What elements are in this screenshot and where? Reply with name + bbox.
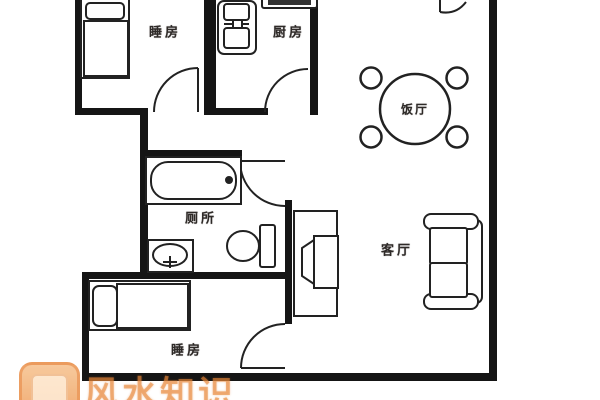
watermark-logo-inner <box>31 374 68 400</box>
label-living-room: 客厅 <box>381 240 413 259</box>
label-dining-room: 饭厅 <box>401 101 429 118</box>
dining-chair <box>361 68 382 89</box>
sofa-symbol <box>424 214 482 309</box>
dining-chair <box>447 68 468 89</box>
floor-plan: 睡房 厨房 饭厅 厕所 客厅 睡房 风水知识 <box>0 0 600 400</box>
bed-top-symbol <box>81 0 129 78</box>
wash-basin-symbol <box>148 240 193 272</box>
label-kitchen: 厨房 <box>273 22 305 41</box>
watermark-text: 风水知识 <box>84 366 236 400</box>
watermark-logo-icon <box>19 362 80 400</box>
wall-bedroom-top-bottom <box>75 108 143 115</box>
wall-right <box>489 0 497 381</box>
bathtub-symbol <box>146 157 241 204</box>
label-bedroom-top: 睡房 <box>149 22 181 41</box>
door-corridor <box>240 161 285 206</box>
dining-chair <box>447 127 468 148</box>
wall-bedroom-bottom-top <box>82 272 292 279</box>
label-bathroom: 厕所 <box>185 208 217 227</box>
dining-chair <box>361 127 382 148</box>
wall-corridor <box>285 200 292 324</box>
wall-bathroom-top <box>140 150 242 157</box>
tv-symbol <box>302 240 314 284</box>
wall-kitchen-left <box>204 0 216 115</box>
kitchen-counter-symbol <box>262 0 317 8</box>
label-bedroom-bottom: 睡房 <box>171 340 203 359</box>
door-bedroom-top <box>154 68 198 112</box>
wall-kitchen-right <box>310 0 318 115</box>
tv-cabinet-symbol <box>294 211 338 316</box>
door-entrance <box>440 0 466 13</box>
floor-plan-drawing <box>0 0 600 400</box>
toilet-symbol <box>227 225 275 267</box>
stove-sink-symbol <box>218 1 256 54</box>
tv-symbol <box>314 236 338 288</box>
door-bedroom-bottom <box>241 324 285 368</box>
wall-bedroom-bottom-left <box>82 272 89 381</box>
bed-bottom-symbol <box>89 281 190 330</box>
door-kitchen <box>265 69 308 112</box>
